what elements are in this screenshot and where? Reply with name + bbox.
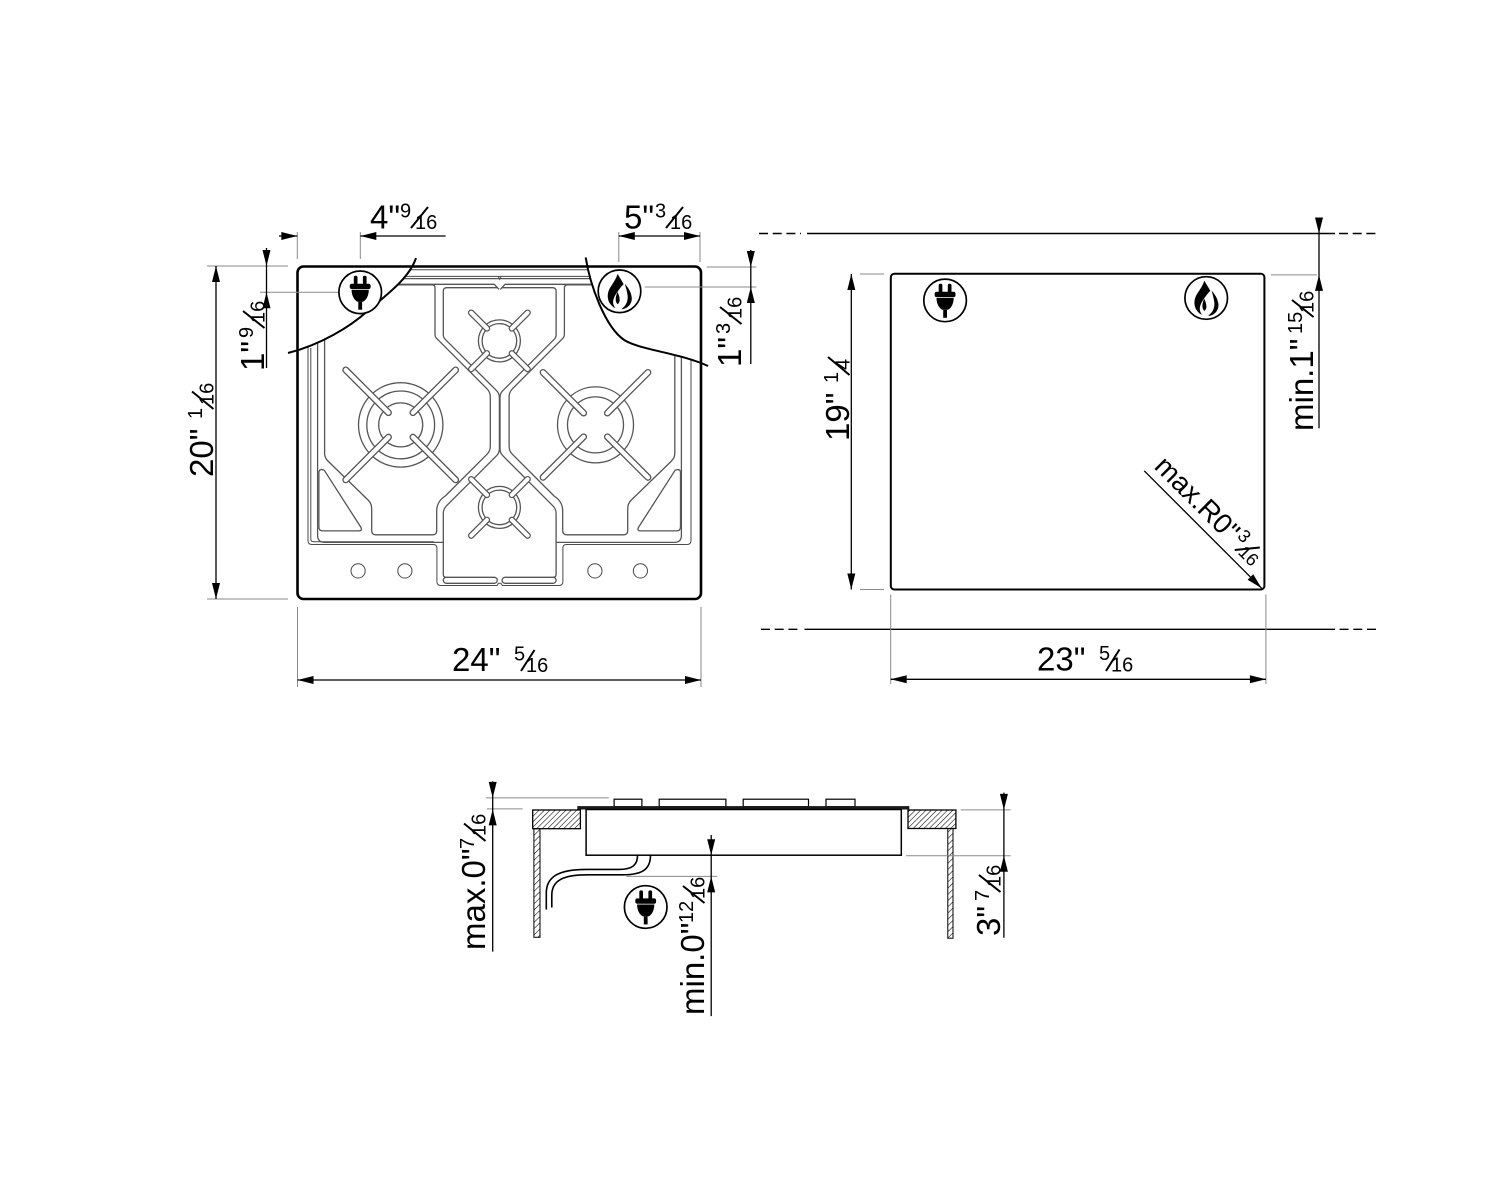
svg-text:16: 16 (984, 865, 1006, 887)
svg-text:16: 16 (248, 301, 270, 323)
svg-text:1: 1 (185, 408, 207, 419)
svg-text:16: 16 (1297, 291, 1319, 313)
svg-text:5: 5 (514, 644, 525, 666)
svg-text:min.1": min.1" (1283, 339, 1320, 431)
svg-text:1": 1" (234, 341, 271, 371)
svg-text:23": 23" (1037, 640, 1085, 677)
svg-text:16: 16 (725, 297, 747, 319)
svg-text:12: 12 (676, 901, 698, 923)
svg-text:7: 7 (972, 890, 994, 901)
svg-text:4": 4" (370, 199, 400, 236)
svg-text:min.0": min.0" (674, 923, 711, 1015)
svg-text:3: 3 (655, 201, 666, 223)
svg-text:3": 3" (970, 906, 1007, 936)
svg-text:19": 19" (819, 393, 856, 441)
svg-text:20": 20" (183, 429, 220, 477)
svg-text:16: 16 (415, 212, 437, 234)
svg-text:16: 16 (526, 655, 548, 677)
svg-text:16: 16 (670, 212, 692, 234)
svg-text:24": 24" (452, 641, 500, 678)
svg-text:4: 4 (833, 359, 855, 370)
svg-text:1: 1 (821, 372, 843, 383)
svg-text:5": 5" (624, 199, 654, 236)
svg-text:9: 9 (236, 327, 258, 338)
svg-text:16: 16 (1111, 655, 1133, 677)
svg-text:15: 15 (1285, 312, 1307, 334)
svg-text:5: 5 (1099, 643, 1110, 665)
svg-text:1": 1" (711, 337, 748, 367)
svg-text:9: 9 (400, 201, 411, 223)
svg-text:7: 7 (457, 838, 479, 849)
svg-text:3: 3 (713, 323, 735, 334)
svg-text:max.0": max.0" (455, 848, 492, 950)
svg-text:16: 16 (197, 383, 219, 405)
svg-text:16: 16 (469, 814, 491, 836)
svg-text:16: 16 (688, 877, 710, 899)
